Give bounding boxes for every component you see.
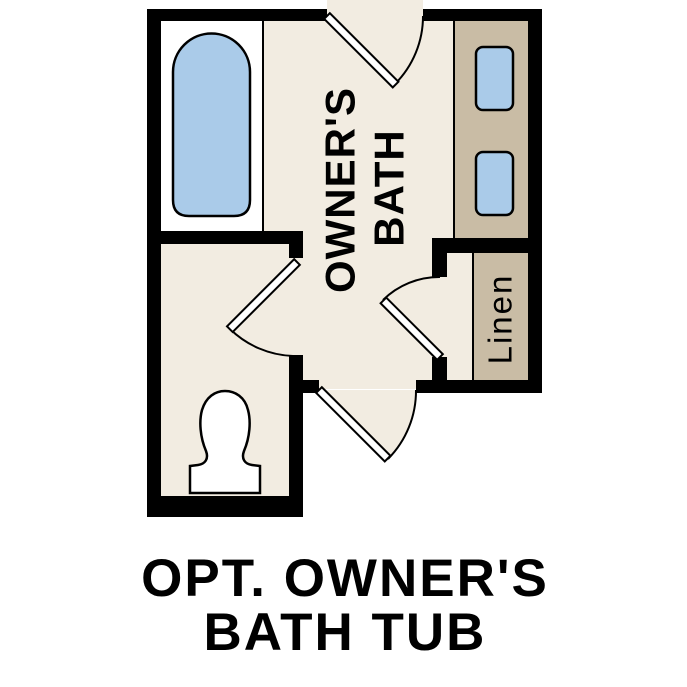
wall-vanity-jog	[432, 238, 542, 253]
vanity-sink-bottom	[476, 152, 513, 215]
wall-top-left	[147, 9, 327, 21]
floorplan-svg: OWNER'S BATH Linen OPT. OWNER'S BATH TUB	[0, 0, 687, 687]
wall-linen-jamb-bottom	[432, 357, 447, 381]
wall-tub-wc-divider	[147, 231, 303, 244]
top-doorway-floor	[327, 0, 423, 21]
wall-wc-door-jamb-top	[289, 244, 303, 258]
owners-bath-label-line1: OWNER'S	[317, 87, 364, 293]
wall-top-right	[423, 9, 542, 21]
vanity-sink-top	[476, 47, 513, 110]
caption-line1: OPT. OWNER'S	[141, 549, 549, 608]
linen-label: Linen	[482, 274, 519, 365]
wall-wc-right	[289, 355, 303, 496]
floorplan-canvas: OWNER'S BATH Linen OPT. OWNER'S BATH TUB	[0, 0, 687, 687]
wall-wc-bottom	[147, 496, 303, 517]
wall-right	[528, 9, 542, 393]
owners-bath-label-line2: BATH	[366, 129, 413, 247]
wall-left	[147, 9, 161, 517]
wall-bottom-right	[416, 380, 542, 393]
wall-linen-jamb-top	[432, 253, 447, 277]
caption-line2: BATH TUB	[204, 603, 487, 662]
bathtub	[173, 34, 250, 217]
